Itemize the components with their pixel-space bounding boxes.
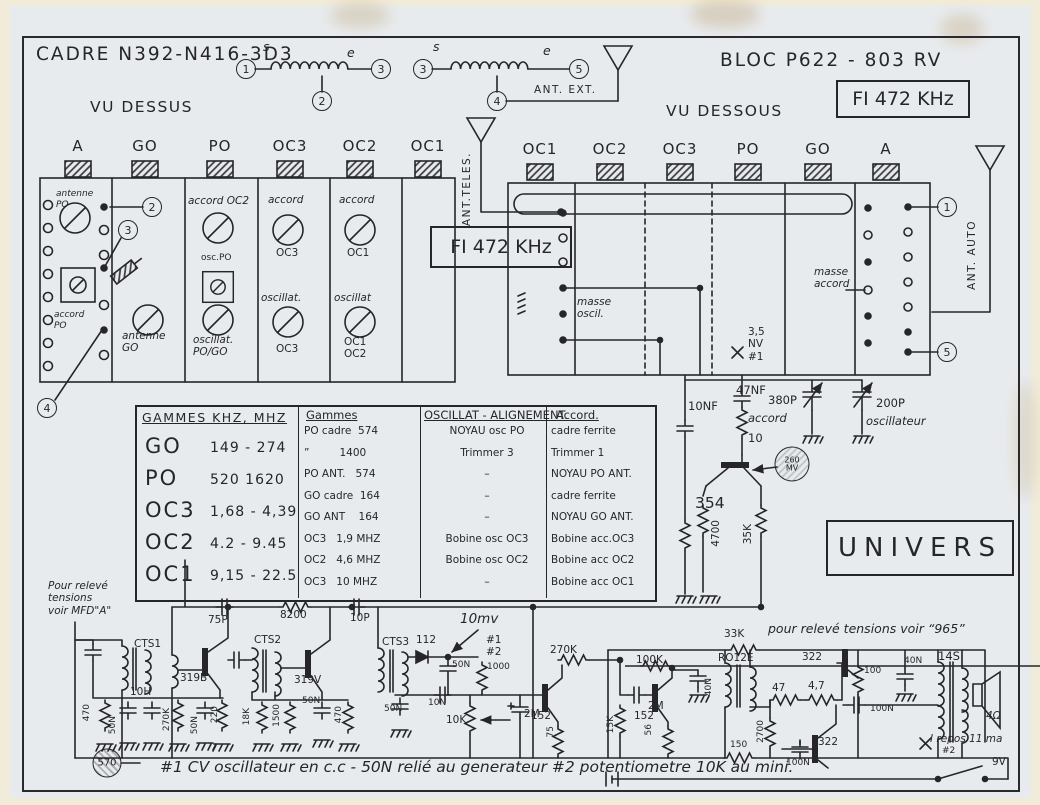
h-oscillat-label: OSCILLAT - ALIGNEMENT.	[424, 409, 568, 423]
coil-icon	[725, 663, 731, 707]
r1500-label: 1500	[272, 704, 283, 727]
r18k-label: 18K	[242, 708, 253, 725]
r56-label: 56	[644, 724, 655, 735]
spk-label: 4Ω	[986, 710, 1001, 722]
mv10-label: 10mv	[460, 612, 498, 628]
c100n-a-label: 100N	[870, 704, 894, 715]
antenna-icon	[976, 146, 1004, 170]
align-gamme-cell: GO cadre 164	[304, 490, 380, 502]
trimmer-icon	[203, 213, 233, 243]
cts1-label: CTS1	[134, 638, 161, 650]
align-oscillat-cell: Bobine osc OC2	[434, 554, 540, 566]
gammes-band: OC1	[145, 562, 196, 586]
fi-value: FI 472 KHz	[450, 236, 552, 258]
c10nf-label: 10NF	[688, 400, 718, 414]
accord-oc1-label: accord	[339, 194, 374, 206]
l10h-label: 10H	[130, 686, 151, 698]
ref-circle: 5	[937, 342, 957, 362]
masse-accord-label: masse accord	[814, 266, 849, 291]
table-divider	[546, 405, 547, 598]
right-panel-col-1: OC2	[593, 140, 628, 158]
c50n-c-label: 50N	[108, 716, 119, 734]
battery-label: 9V	[992, 756, 1006, 768]
ref-circle: 1	[236, 59, 256, 79]
coil-icon	[750, 667, 756, 711]
align-accord-cell: cadre ferrite	[551, 490, 616, 502]
footer-label: #1 CV oscillateur en c.c - 50N relié au …	[160, 758, 793, 776]
resistor-icon	[770, 695, 801, 705]
oscillat-oc3-label: oscillat.	[261, 292, 301, 304]
coil-icon	[962, 668, 968, 712]
ref-circle: 3	[118, 220, 138, 240]
vu-dessus-label: VU DESSUS	[90, 98, 193, 116]
coil-icon	[938, 662, 944, 706]
t319b-label: 319B	[180, 672, 207, 684]
ground-icon	[853, 436, 873, 443]
antenna-icon	[604, 46, 632, 70]
bloc-title: BLOC P622 - 803 RV	[720, 50, 942, 71]
gammes-range: 520 1620	[210, 472, 285, 488]
align-gamme-cell: OC3 1,9 MHZ	[304, 533, 380, 545]
left-panel-col-1: GO	[132, 137, 157, 155]
c50n-b-label: 50N	[384, 704, 402, 715]
capacitor-icon	[677, 420, 693, 437]
c50n-a-label: 50N	[452, 660, 470, 671]
c47nf-label: 47NF	[736, 384, 766, 398]
resistor-icon	[465, 703, 475, 734]
transistor-icon	[542, 684, 548, 712]
right-panel-col-3: PO	[737, 140, 760, 158]
resistor-icon	[285, 702, 295, 733]
align-accord-cell: Trimmer 1	[551, 447, 604, 459]
table-divider	[420, 405, 421, 598]
align-oscillat-cell: –	[434, 576, 540, 588]
left-panel-col-5: OC1	[411, 137, 446, 155]
accord-label: accord	[748, 412, 787, 426]
ground-icon	[803, 436, 823, 443]
resistor-icon	[173, 700, 183, 731]
r47-label: 47	[772, 682, 785, 694]
hash12-label: #1 #2	[486, 634, 501, 659]
r270k-label: 270K	[550, 644, 577, 656]
align-oscillat-cell: Bobine osc OC3	[434, 533, 540, 545]
t14s-label: 14S	[938, 650, 960, 664]
align-gamme-cell: ” 1400	[304, 447, 366, 459]
jack-570: 570	[93, 749, 122, 778]
c200p-label: 200P	[876, 397, 905, 411]
measure-260mv: 260 MV	[775, 447, 810, 482]
i-repos-ref-label: #2	[942, 746, 955, 757]
trimmer-icon	[203, 272, 234, 303]
trimmer-icon	[203, 305, 233, 335]
c10p-label: 10P	[350, 612, 370, 624]
right-panel-col-0: OC1	[523, 140, 558, 158]
r15k-label: 15K	[606, 716, 617, 733]
left-panel-col-2: PO	[209, 137, 232, 155]
align-oscillat-cell: –	[434, 468, 540, 480]
coil-icon	[275, 652, 281, 696]
resistor-icon	[737, 407, 747, 438]
oscillat-oc12-label: oscillat	[334, 292, 371, 304]
ant-teles-label: ANT.TELES.	[461, 152, 473, 226]
gammes-band: PO	[145, 466, 178, 490]
oscillat-pogo-label: oscillat. PO/GO	[193, 334, 233, 359]
h-accord-label: Accord.	[556, 409, 599, 423]
left-panel-col-4: OC2	[343, 137, 378, 155]
c50n-e-label: 50N	[302, 696, 320, 707]
ref-circle: 3	[413, 59, 433, 79]
coil-icon	[172, 655, 178, 688]
r10-label: 10	[748, 432, 763, 446]
align-accord-cell: cadre ferrite	[551, 425, 616, 437]
trimmer-icon	[345, 307, 375, 337]
oc3-a-label: OC3	[276, 247, 298, 259]
align-oscillat-cell: Trimmer 3	[434, 447, 540, 459]
capacitor-icon	[144, 702, 160, 719]
h-gammes-label: Gammes	[306, 409, 357, 423]
t354-label: 354	[695, 494, 725, 512]
ant-ext-label: ANT. EXT.	[534, 84, 597, 96]
gammes-range: 4.2 - 9.45	[210, 536, 287, 552]
t152b-label: 152	[634, 710, 654, 722]
ref-circle: 3	[371, 59, 391, 79]
s2-label: s	[433, 40, 440, 55]
resistor-icon	[558, 655, 589, 665]
fi-value: FI 472 KHz	[852, 88, 954, 110]
oscillateur-label: oscillateur	[866, 415, 926, 429]
s1-label: s	[263, 40, 270, 55]
ground-icon	[896, 694, 916, 701]
cadre-title: CADRE N392-N416-3D3	[36, 44, 294, 65]
r150-label: 150	[730, 740, 747, 751]
resistor-icon	[853, 664, 863, 695]
t322a-label: 322	[802, 651, 822, 663]
r100-label: 100	[864, 666, 881, 677]
i-repos-label: I repos 11 ma	[930, 733, 1002, 745]
gammes-range: 149 - 274	[210, 440, 286, 456]
schematic-scan: CADRE N392-N416-3D3 BLOC P622 - 803 RV V…	[0, 0, 1040, 805]
c100n-b-label: 100N	[786, 758, 810, 769]
oc3-b-label: OC3	[276, 343, 298, 355]
align-accord-cell: Bobine acc OC1	[551, 576, 634, 588]
gammes-band: OC2	[145, 530, 196, 554]
variable-capacitor-icon	[853, 383, 872, 410]
t319v-label: 319V	[294, 674, 321, 686]
c40n-a-label: 40N	[704, 678, 715, 696]
ref-circle: 5	[569, 59, 589, 79]
r33k-label: 33K	[724, 628, 744, 640]
vu-dessous-label: VU DESSOUS	[666, 102, 783, 120]
capacitor-icon	[228, 652, 245, 668]
right-panel	[508, 164, 938, 375]
capacitor-icon	[85, 644, 101, 661]
resistor-icon	[477, 662, 487, 693]
r75-label: 75	[546, 726, 557, 737]
univers-label: UNIVERS	[838, 533, 1002, 563]
d112-label: 112	[416, 634, 436, 646]
r1000-label: 1000	[487, 662, 510, 673]
e2-label: e	[543, 44, 551, 59]
trimmer-icon	[345, 215, 375, 245]
align-accord-cell: Bobine acc.OC3	[551, 533, 634, 545]
trimmer-icon	[273, 307, 303, 337]
r4-7-label: 4,7	[808, 680, 825, 692]
r10k-label: 10K	[446, 714, 466, 726]
coil-icon	[378, 648, 384, 692]
osc-po-label: osc.PO	[201, 253, 232, 264]
c380p-label: 380P	[768, 394, 797, 408]
antenne-go-label: antenne GO	[122, 330, 165, 355]
right-panel-col-2: OC3	[663, 140, 698, 158]
ro12e-label: RO12E	[718, 652, 754, 664]
univers-box: UNIVERS	[826, 520, 1014, 576]
resistor-icon	[680, 520, 690, 551]
r35k-label: 35K	[742, 524, 754, 544]
coil-icon	[402, 652, 408, 696]
e1-label: e	[347, 46, 355, 61]
switch-icon	[938, 766, 982, 779]
releve-965-label: pour relevé tensions voir “965”	[768, 622, 965, 637]
gammes-range: 9,15 - 22.5	[210, 568, 297, 584]
r470b-label: 470	[334, 706, 345, 723]
align-gamme-cell: PO cadre 574	[304, 425, 378, 437]
antenne-po-label: antenne PO	[56, 189, 93, 210]
r2700-label: 2700	[756, 720, 767, 743]
align-oscillat-cell: –	[434, 490, 540, 502]
resistor-icon	[663, 726, 673, 757]
align-gamme-cell: OC3 10 MHZ	[304, 576, 377, 588]
align-gamme-cell: GO ANT 164	[304, 511, 379, 523]
r4700-label: 4700	[710, 520, 722, 547]
accord-oc2-label: accord OC2	[188, 195, 249, 207]
resistor-icon	[756, 505, 766, 536]
pour-releve-label: Pour relevé tensions voir MFD"A"	[48, 580, 111, 617]
c10n-label: 10N	[428, 698, 446, 709]
align-gamme-cell: PO ANT. 574	[304, 468, 376, 480]
gammes-range: 1,68 - 4,39	[210, 504, 297, 520]
ref-circle: 2	[142, 197, 162, 217]
align-accord-cell: NOYAU GO ANT.	[551, 511, 634, 523]
oc1-b-label: OC1 OC2	[344, 336, 366, 361]
align-oscillat-cell: NOYAU osc PO	[434, 425, 540, 437]
ferrite-rod-icon	[111, 255, 145, 284]
table-divider	[298, 405, 299, 598]
t322b-label: 322	[818, 736, 838, 748]
align-oscillat-cell: –	[434, 511, 540, 523]
r100k-label: 100K	[636, 654, 663, 666]
coil-icon	[252, 648, 258, 692]
t152a-label: 152	[531, 710, 551, 722]
gammes-band: OC3	[145, 498, 196, 522]
accord-oc3-label: accord	[268, 194, 303, 206]
transistor-icon	[842, 649, 848, 677]
c75p-label: 75P	[208, 614, 228, 626]
r220-label: 220	[210, 706, 221, 723]
c40n-b-label: 40N	[904, 656, 922, 667]
resistor-icon	[806, 695, 837, 705]
fi-box-middle: FI 472 KHz	[430, 226, 572, 268]
left-panel-col-3: OC3	[273, 137, 308, 155]
coil-icon	[122, 646, 128, 690]
masse-oscil-label: masse oscil.	[577, 296, 611, 321]
right-panel-col-4: GO	[805, 140, 830, 158]
resistor-icon	[257, 702, 267, 733]
ground-icon	[700, 596, 720, 603]
variable-capacitor-icon	[803, 383, 822, 410]
accord-po-label: accord PO	[54, 310, 84, 331]
capacitor-icon	[848, 697, 865, 713]
capacitor-icon	[897, 668, 913, 685]
ref-circle: 1	[937, 197, 957, 217]
oc1-a-label: OC1	[347, 247, 369, 259]
left-panel-col-0: A	[72, 137, 83, 155]
cts2-label: CTS2	[254, 634, 281, 646]
ref-circle: 4	[487, 91, 507, 111]
r8200-label: 8200	[280, 609, 307, 621]
cts3-label: CTS3	[382, 636, 409, 648]
align-gamme-cell: OC2 4,6 MHZ	[304, 554, 380, 566]
nv-label: 3,5 NV #1	[748, 326, 765, 363]
ant-auto-label: ANT. AUTO	[966, 220, 978, 290]
r270k-b-label: 270K	[162, 708, 173, 731]
right-panel-col-5: A	[880, 140, 891, 158]
c50n-d-label: 50N	[190, 716, 201, 734]
transistor-icon	[721, 462, 749, 468]
ref-circle: 4	[37, 398, 57, 418]
align-accord-cell: Bobine acc OC2	[551, 554, 634, 566]
fi-box-top-right: FI 472 KHz	[836, 80, 970, 118]
ref-circle: 2	[312, 91, 332, 111]
gammes-band: GO	[145, 434, 182, 458]
align-accord-cell: NOYAU PO ANT.	[551, 468, 632, 480]
trimmer-icon	[273, 215, 303, 245]
ground-icon	[676, 596, 696, 603]
trimmer-icon	[61, 268, 95, 302]
capacitor-icon	[628, 687, 645, 703]
r470a-label: 470	[82, 704, 93, 721]
title-label: GAMMES KHZ, MHZ	[142, 411, 287, 426]
antenna-icon	[467, 118, 495, 142]
